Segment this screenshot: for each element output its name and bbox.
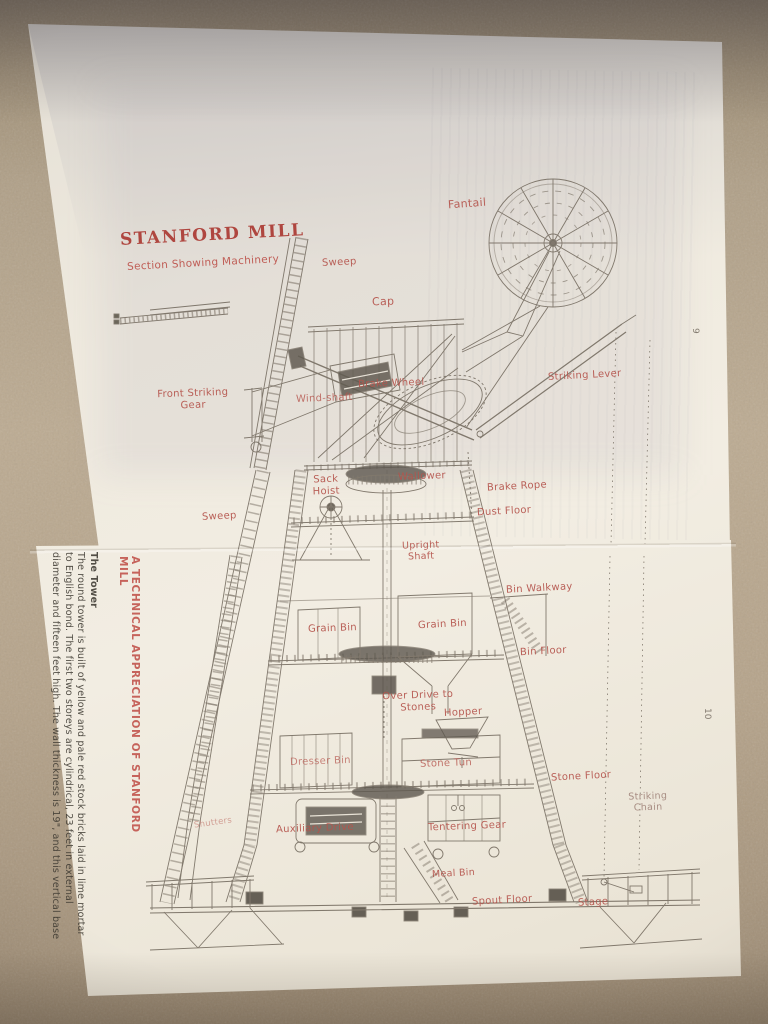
label-sweep-top: Sweep [322, 256, 357, 269]
label-stage: Stage [578, 896, 609, 909]
label-grain-bin-left: Grain Bin [308, 622, 357, 635]
rotated-red-heading: A TECHNICAL APPRECIATION OF STANFORD MIL… [117, 556, 141, 856]
page-number-10: 10 [702, 708, 712, 719]
label-sack-hoist: Sack Hoist [306, 473, 347, 497]
label-stone-tun: Stone Tun [420, 757, 472, 770]
label-upright-shaft: Upright Shaft [394, 540, 449, 564]
label-cap: Cap [372, 296, 395, 309]
rotated-tower-text: The Tower The round tower is built of ye… [49, 552, 99, 944]
label-bin-floor: Bin Floor [520, 645, 567, 659]
scale-bar [114, 302, 230, 324]
stage-platform [146, 869, 702, 950]
tower-walls [226, 470, 588, 902]
label-fantail: Fantail [448, 197, 487, 212]
label-sweep-left: Sweep [202, 510, 237, 523]
label-meal-bin: Meal Bin [432, 868, 476, 881]
sweeps [160, 237, 308, 904]
mill-drawing [0, 0, 768, 1024]
tower-text-body: The round tower is built of yellow and p… [50, 552, 86, 939]
label-brake-wheel: Brake Wheel [358, 377, 425, 391]
sack-hoist-drawing [292, 496, 370, 560]
label-wind-shaft: Wind-shaft [296, 392, 353, 405]
label-wallower: Wallower [398, 470, 446, 483]
label-front-striking-gear: Front Striking Gear [150, 387, 237, 413]
photo-of-document: STANFORD MILL Section Showing Machinery … [0, 0, 768, 1024]
label-hopper: Hopper [444, 706, 483, 719]
windshaft-and-brakewheel [288, 347, 497, 464]
page-number-9: 9 [690, 328, 700, 334]
label-striking-chain: Striking Chain [622, 791, 675, 815]
label-dresser-bin: Dresser Bin [290, 755, 351, 769]
tower-text-heading: The Tower [86, 552, 99, 944]
